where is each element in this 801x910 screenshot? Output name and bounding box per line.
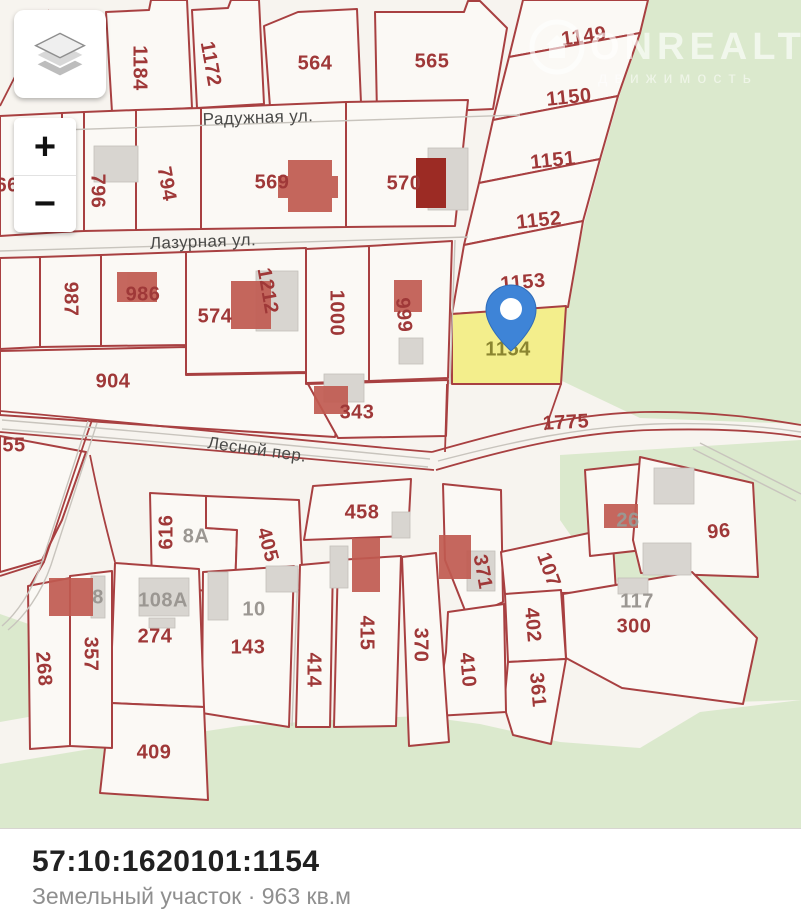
- parcel-number-label: 616: [156, 515, 179, 550]
- zoom-in-button[interactable]: +: [14, 118, 76, 175]
- parcel-number-label: 343: [340, 402, 375, 425]
- parcel-info-panel: 57:10:1620101:1154 Земельный участок · 9…: [0, 828, 801, 910]
- parcel-number-label: 415: [355, 616, 378, 651]
- parcel-number-label: 361: [524, 672, 550, 709]
- parcel-number-label: 569: [255, 172, 290, 195]
- parcel-number-label: 410: [454, 652, 480, 689]
- parcel-number-label: 796: [86, 174, 109, 209]
- parcel-number-label: 1151: [529, 147, 577, 175]
- parcel-number-label: 108А: [138, 590, 188, 613]
- parcel-number-label: 1150: [545, 84, 593, 112]
- parcel-number-label: 987: [59, 282, 82, 317]
- cadastral-number: 57:10:1620101:1154: [32, 845, 320, 879]
- parcel-number-label: 96: [706, 520, 731, 545]
- parcel-number-label: 564: [298, 53, 333, 76]
- street-name-label: Радужная ул.: [202, 106, 313, 130]
- parcel-number-label: 117: [620, 591, 654, 614]
- parcel-number-label: 574: [198, 306, 233, 329]
- zoom-out-button[interactable]: −: [14, 175, 76, 232]
- parcel-number-label: 904: [96, 371, 131, 394]
- parcel-number-label: 300: [617, 616, 652, 639]
- parcel-number-label: 565: [415, 51, 450, 74]
- parcel-number-label: 55: [2, 435, 25, 458]
- parcel-number-label: 357: [79, 637, 102, 672]
- map-graphics: [0, 0, 801, 828]
- parcel-description: Земельный участок · 963 кв.м: [32, 883, 351, 910]
- parcel-number-label: 26: [616, 510, 639, 533]
- parcel-number-label: 370: [409, 628, 432, 663]
- parcel-number-label: 409: [137, 742, 172, 765]
- parcel-number-label: 570: [387, 173, 422, 196]
- layers-button[interactable]: [14, 10, 106, 98]
- parcel-number-label: 986: [126, 284, 161, 307]
- parcel-number-label: 268: [30, 651, 56, 688]
- street-name-label: Лазурная ул.: [150, 230, 257, 254]
- parcel-number-label: 414: [302, 653, 325, 688]
- parcel-number-label: 274: [138, 626, 173, 649]
- parcel-number-label: 1152: [515, 207, 563, 235]
- cadastral-map-app: Радужная ул.Лазурная ул.Лесной пер. 1184…: [0, 0, 801, 910]
- parcel-number-label: 143: [231, 637, 266, 660]
- parcel-number-label: 1184: [128, 45, 151, 90]
- location-pin[interactable]: [483, 283, 539, 353]
- zoom-controls: + −: [14, 118, 76, 232]
- parcel-number-label: 999: [390, 297, 416, 334]
- parcel-number-label: 8А: [183, 526, 210, 549]
- layers-icon: [30, 24, 90, 84]
- parcel-number-label: 8: [92, 587, 104, 610]
- parcel-number-label: 402: [519, 607, 545, 644]
- parcel-number-label: 10: [242, 599, 265, 622]
- parcel-number-label: 1000: [325, 290, 348, 337]
- map-canvas[interactable]: Радужная ул.Лазурная ул.Лесной пер. 1184…: [0, 0, 801, 828]
- parcel-number-label: 1775: [542, 410, 590, 435]
- parcel-number-label: 458: [345, 502, 380, 525]
